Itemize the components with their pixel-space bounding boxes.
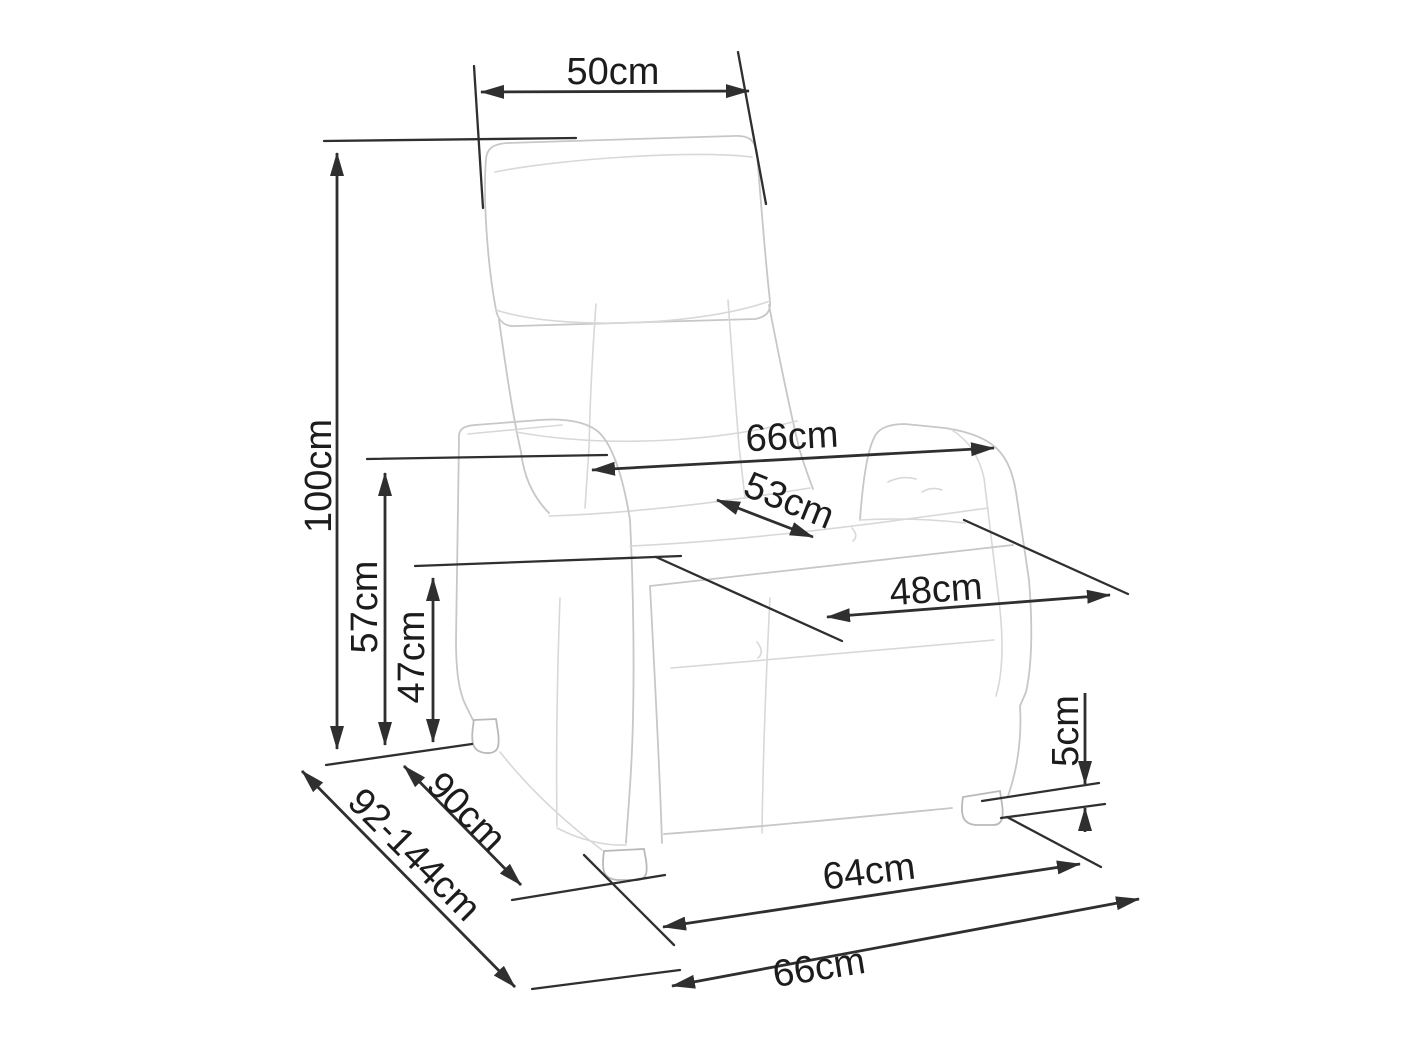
extension-lines <box>324 52 1128 989</box>
ext-seatdepth-left <box>656 557 842 641</box>
label-armrest-height: 57cm <box>344 561 386 654</box>
foot-right <box>962 791 1003 825</box>
right-armrest-texture <box>888 478 942 492</box>
headrest-outline <box>485 136 770 326</box>
headrest-top-seam <box>495 155 752 172</box>
ext-seat-top <box>415 556 681 566</box>
ext-base-right <box>1007 817 1101 867</box>
right-armrest-pad-seam <box>952 430 1002 696</box>
ext-headrest-left <box>474 66 483 208</box>
left-armrest-front-edge <box>626 520 634 843</box>
ext-armrest-top <box>367 455 607 459</box>
tuft-dimple-1 <box>757 642 761 658</box>
base-right-edge <box>1008 706 1020 796</box>
label-width-armrest-outer: 66cm <box>745 414 840 461</box>
backrest-seam-v1 <box>585 304 596 508</box>
dim-overall-width-line <box>672 899 1139 986</box>
front-face-bottom <box>664 808 952 834</box>
backrest-left-edge <box>499 320 549 513</box>
ext-depth-bottom <box>512 875 665 900</box>
diagram-canvas: 50cm 100cm 66cm 53cm 48cm 57cm 47cm 5cm … <box>0 0 1403 1052</box>
dimension-labels: 50cm 100cm 66cm 53cm 48cm 57cm 47cm 5cm … <box>298 51 1087 996</box>
label-seat-height: 47cm <box>391 611 433 704</box>
label-seat-depth: 48cm <box>888 566 984 614</box>
label-foot-height: 5cm <box>1045 695 1087 767</box>
label-overall-width: 66cm <box>770 940 868 996</box>
armchair-sketch <box>456 136 1031 880</box>
front-face-seam-h <box>671 640 994 668</box>
left-body-front-line <box>557 598 560 826</box>
tuft-dimple-2 <box>852 528 856 541</box>
ext-height-top <box>324 138 576 141</box>
ext-headrest-right <box>738 52 766 204</box>
base-floor-edge <box>500 752 602 850</box>
ext-floor-left <box>326 744 472 765</box>
recliner-dimension-diagram: 50cm 100cm 66cm 53cm 48cm 57cm 47cm 5cm … <box>0 0 1403 1052</box>
ext-foot-bottom <box>1001 804 1105 818</box>
foot-back-left <box>472 719 498 753</box>
label-headrest-width: 50cm <box>567 51 660 93</box>
ext-range-bottom <box>532 970 680 989</box>
foot-front <box>603 849 647 880</box>
right-armrest-outline <box>860 424 1031 706</box>
label-total-height: 100cm <box>298 419 340 533</box>
left-armrest-outline <box>456 419 630 722</box>
front-face-seam-v <box>762 598 770 833</box>
backrest-right-edge <box>769 305 813 489</box>
backrest-seam-v2 <box>728 300 745 498</box>
front-face-left <box>650 586 662 843</box>
ext-seatdepth-right <box>964 520 1128 594</box>
